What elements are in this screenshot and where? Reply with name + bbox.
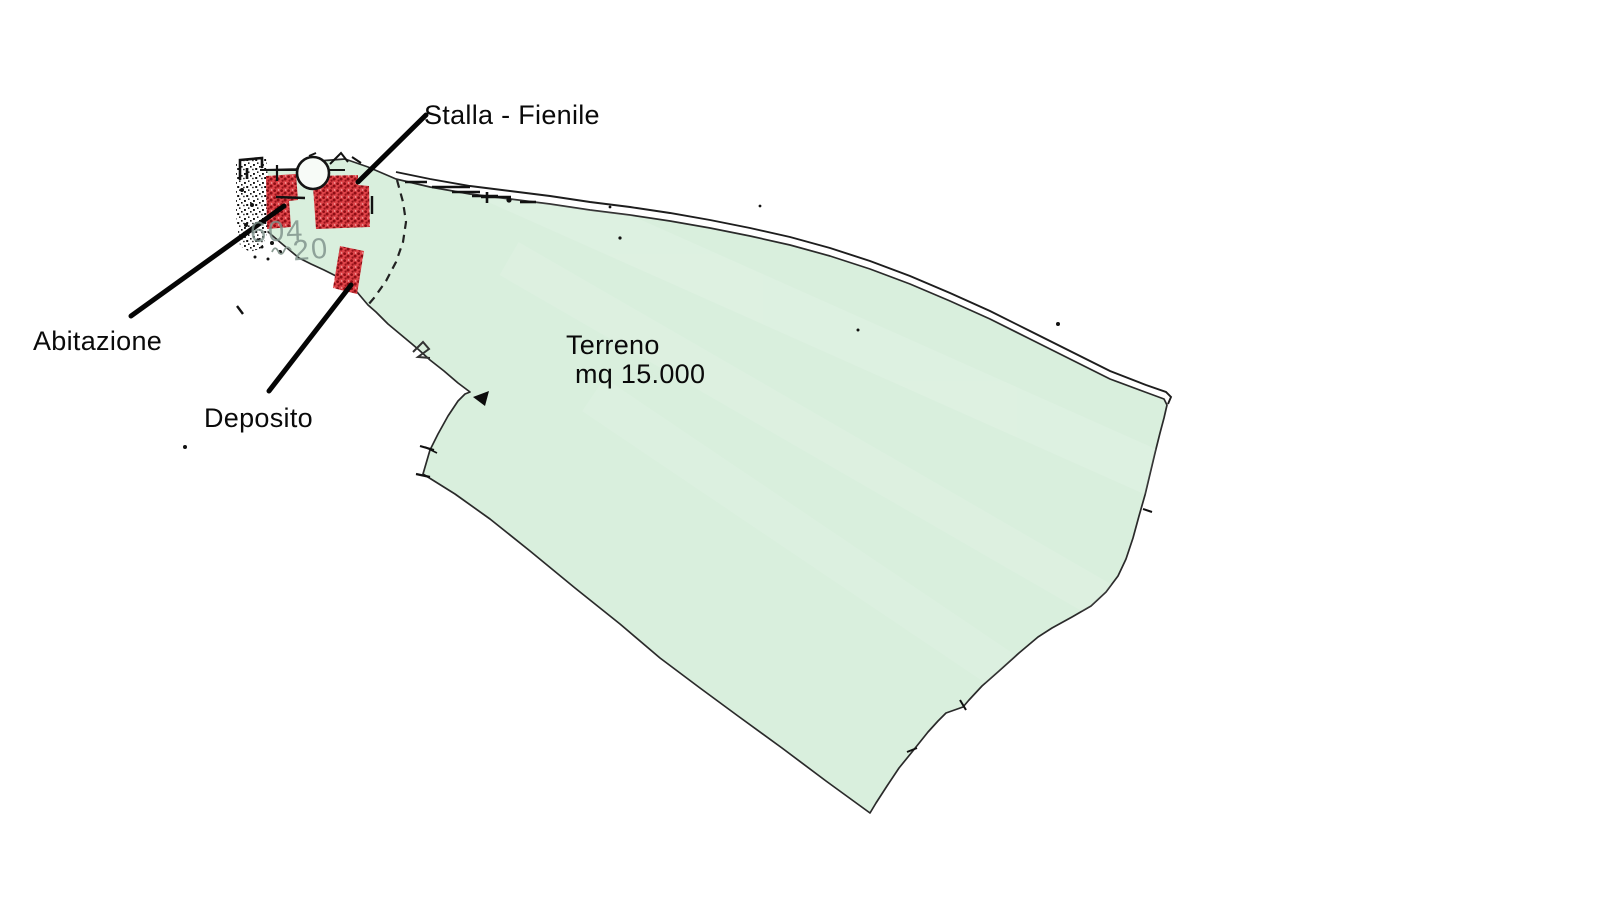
label-terreno-area: mq 15.000	[575, 360, 705, 388]
label-deposito: Deposito	[204, 404, 313, 432]
well-circle	[297, 153, 329, 189]
parcel-number-20: 20	[292, 232, 331, 268]
label-terreno: Terreno	[566, 331, 660, 359]
label-stalla-fienile: Stalla - Fienile	[424, 101, 600, 129]
cadastral-plan-page: Stalla - Fienile Abitazione Deposito Ter…	[0, 0, 1600, 910]
label-abitazione: Abitazione	[33, 327, 162, 355]
leader-line-stalla	[358, 115, 426, 182]
leader-line-deposito	[269, 285, 351, 391]
site-plan-drawing	[0, 0, 1600, 910]
